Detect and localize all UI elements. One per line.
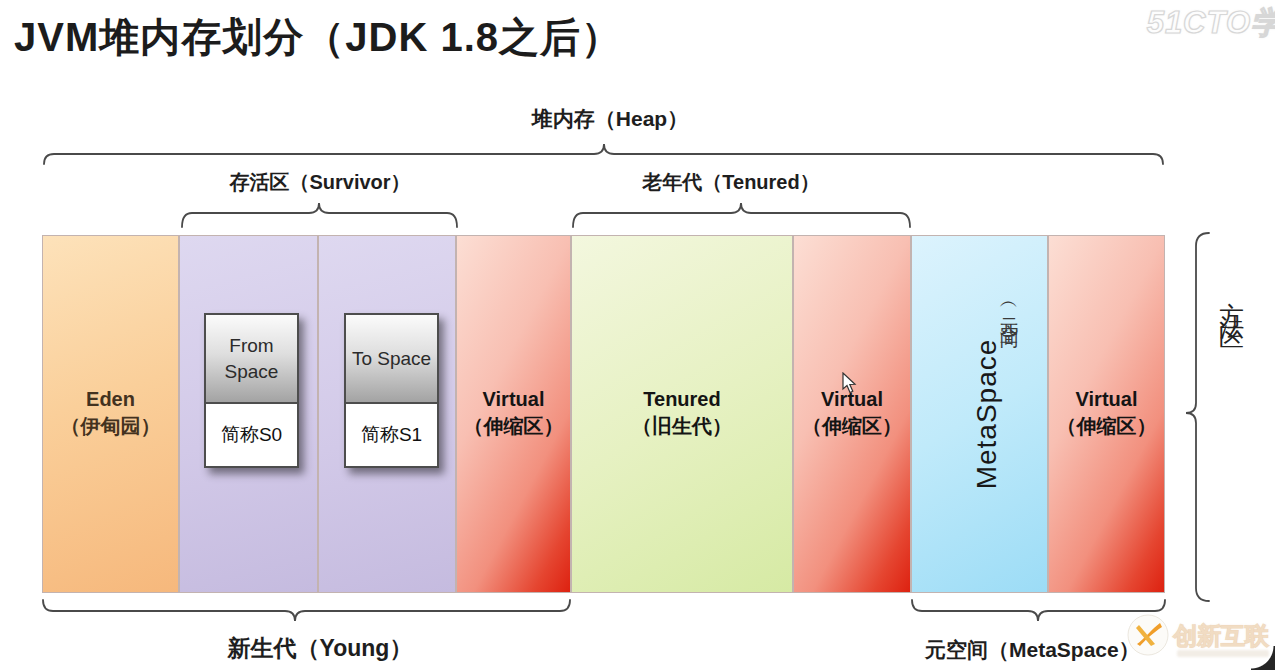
tenured-block-label: Tenured （旧生代）: [572, 386, 792, 440]
virtual-tenured-block: Virtual （伸缩区）: [793, 235, 911, 593]
young-brace-label: 新生代（Young）: [170, 633, 470, 664]
virtual-tenured-label: Virtual （伸缩区）: [794, 386, 910, 440]
mouse-cursor-icon: [842, 372, 858, 394]
to-space-title: To Space: [346, 315, 437, 404]
slide-canvas: JVM堆内存划分（JDK 1.8之后） 堆内存（Heap） 存活区（Surviv…: [0, 0, 1275, 670]
heap-brace-label: 堆内存（Heap）: [460, 105, 760, 133]
metaspace-brace-label: 元空间（MetaSpace）: [925, 636, 1140, 664]
eden-block-label: Eden （伊甸园）: [43, 386, 178, 440]
heap-blocks-strip: Eden （伊甸园） From Space 简称S0 To Space 简称S1…: [42, 235, 1165, 593]
from-space-title: From Space: [206, 315, 297, 404]
virtual-metaspace-block: Virtual （伸缩区）: [1048, 235, 1165, 593]
virtual-young-block: Virtual （伸缩区）: [456, 235, 571, 593]
method-area-label: 方法区: [1216, 282, 1249, 318]
metaspace-block-label-zh: （元空间）: [996, 296, 1022, 326]
to-space-alias: 简称S1: [346, 404, 437, 466]
method-area-brace: [1186, 233, 1209, 601]
young-brace: [43, 600, 570, 621]
watermark-51cto: 51CTO学: [1147, 2, 1275, 44]
tenured-brace: [573, 203, 910, 227]
from-space-box: From Space 简称S0: [204, 313, 299, 468]
eden-block: Eden （伊甸园）: [42, 235, 179, 593]
survivor-s1-block: To Space 简称S1: [318, 235, 456, 593]
survivor-brace-label: 存活区（Survivor）: [170, 169, 470, 196]
survivor-s0-block: From Space 简称S0: [179, 235, 318, 593]
brand-logo-icon: [1127, 614, 1169, 656]
heap-brace: [44, 144, 1163, 164]
tenured-brace-label: 老年代（Tenured）: [581, 169, 881, 196]
survivor-brace: [182, 203, 457, 227]
page-title: JVM堆内存划分（JDK 1.8之后）: [14, 10, 622, 65]
virtual-young-label: Virtual （伸缩区）: [457, 386, 570, 440]
tenured-block: Tenured （旧生代）: [571, 235, 793, 593]
player-corner-shade: [1251, 646, 1275, 670]
metaspace-block: MetaSpace （元空间）: [911, 235, 1048, 593]
to-space-box: To Space 简称S1: [344, 313, 439, 468]
virtual-metaspace-label: Virtual （伸缩区）: [1049, 386, 1164, 440]
from-space-alias: 简称S0: [206, 404, 297, 466]
